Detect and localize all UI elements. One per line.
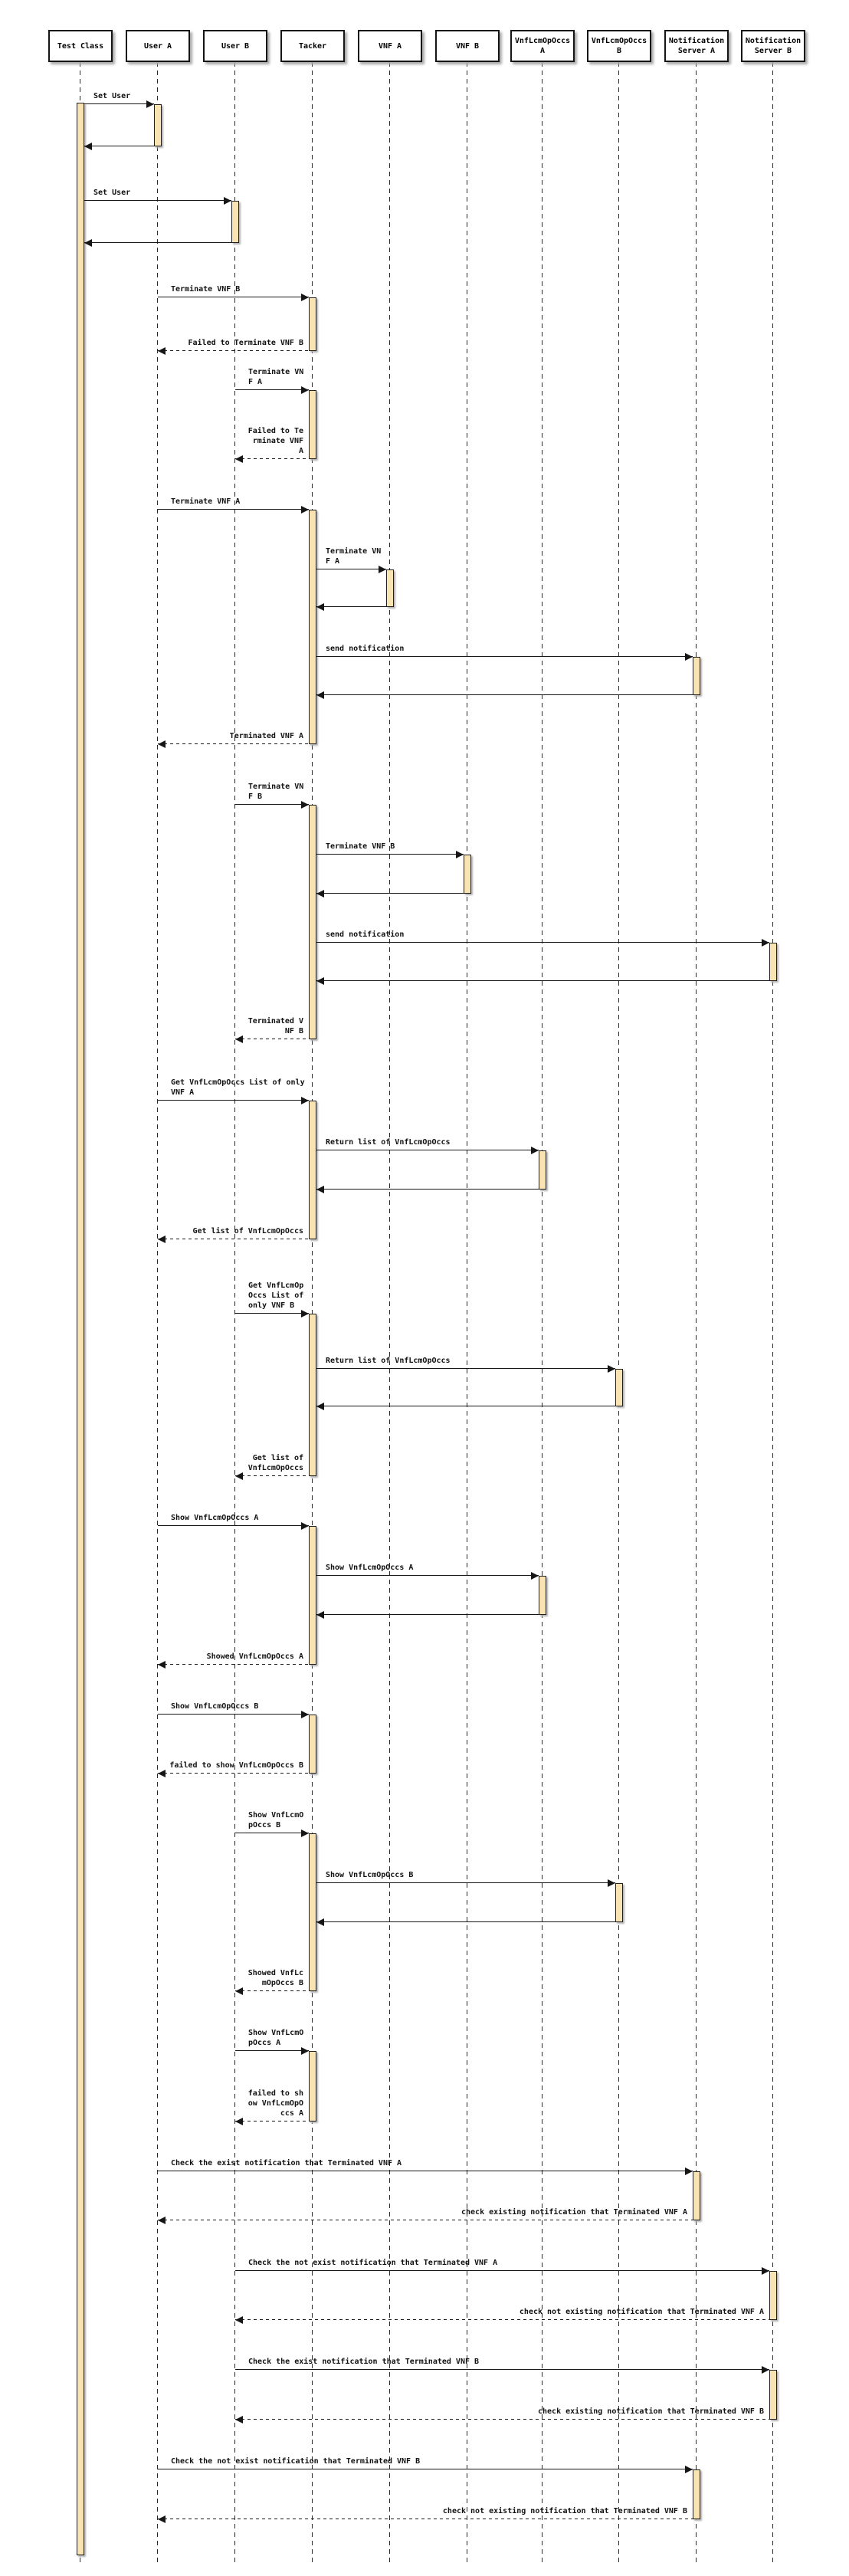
arrowhead-icon [608,1365,615,1373]
activation-bar-vnflcmopoccs-a [539,1576,546,1615]
arrowhead-icon [224,197,231,205]
message-label: Show VnfLcmOpOccs A [326,1563,413,1573]
message-line [235,1833,309,1833]
message-label: Get VnfLcmOpOccs List of only VNF A [171,1078,305,1098]
message-label: Check the not exist notification that Te… [171,2456,420,2466]
return-message-line [158,1664,309,1665]
message-line [158,509,309,510]
return-message-line [84,242,231,243]
message-label: check existing notification that Termina… [538,2407,764,2417]
arrowhead-icon [235,1987,243,1995]
message-label: Show VnfLcmOpOccs B [326,1870,413,1880]
arrowhead-icon [762,939,769,947]
return-message-line [316,1921,615,1922]
arrowhead-icon [146,100,154,108]
activation-bar-tacker [309,297,316,351]
arrowhead-icon [301,1310,309,1318]
participant-label: Notification Server A [669,36,724,56]
activation-bar-notification-server-a [693,2171,700,2220]
return-message-line [158,2519,693,2519]
return-message-line [235,2121,309,2122]
message-label: Set User [93,91,130,101]
lifeline-vnflcmopoccs-a [542,62,543,2564]
participant-label: Test Class [57,41,103,51]
message-line [235,389,309,390]
message-label: Terminate VN F A [248,367,303,387]
activation-bar-user-b [231,201,239,243]
message-label: Check the exist notification that Termin… [248,2357,479,2367]
activation-bar-notification-server-a [693,657,700,695]
message-line [158,297,309,297]
message-line [316,569,386,569]
activation-bar-notification-server-b [769,2271,777,2320]
message-label: Show VnfLcmOpOccs B [171,1701,258,1711]
participant-box-user-a: User A [126,30,190,62]
message-line [316,1150,539,1150]
arrowhead-icon [762,2267,769,2275]
return-message-line [84,146,154,146]
return-message-line [158,1239,309,1239]
arrowhead-icon [316,603,324,611]
message-line [158,1100,309,1101]
arrowhead-icon [158,1770,166,1777]
message-label: Get list of VnfLcmOpOccs [248,1453,303,1473]
return-message-line [316,893,464,894]
return-message-line [235,2419,769,2420]
participant-label: VNF A [379,41,402,51]
arrowhead-icon [531,1572,539,1580]
arrowhead-icon [301,386,309,394]
message-label: Terminate VNF A [171,497,240,507]
message-label: Return list of VnfLcmOpOccs [326,1137,451,1147]
message-line [316,1575,539,1576]
arrowhead-icon [531,1147,539,1154]
message-label: Show VnfLcmO pOccs B [248,1810,303,1830]
arrowhead-icon [379,566,386,573]
arrowhead-icon [608,1879,615,1887]
lifeline-user-a [157,62,158,2564]
activation-bar-notification-server-a [693,2469,700,2519]
participant-box-vnflcmopoccs-b: VnfLcmOpOccs B [587,30,651,62]
participant-box-test-class: Test Class [48,30,113,62]
message-line [158,2171,693,2171]
participant-label: Notification Server B [746,36,801,56]
message-label: check existing notification that Termina… [461,2207,687,2217]
message-label: send notification [326,930,404,940]
lifeline-vnflcmopoccs-b [618,62,619,2564]
arrowhead-icon [158,740,166,748]
participant-box-vnf-a: VNF A [358,30,422,62]
message-label: Show VnfLcmOpOccs A [171,1513,258,1523]
arrowhead-icon [235,2118,243,2125]
lifeline-vnf-a [389,62,390,2564]
message-line [316,854,464,855]
message-line [235,2369,769,2370]
arrowhead-icon [158,2515,166,2523]
participant-box-vnf-b: VNF B [435,30,500,62]
return-message-line [235,1039,309,1039]
participant-box-tacker: Tacker [280,30,345,62]
arrowhead-icon [84,143,92,150]
message-label: Return list of VnfLcmOpOccs [326,1356,451,1366]
arrowhead-icon [235,2316,243,2324]
message-label: Terminated VNF A [230,731,303,741]
message-line [235,804,309,805]
return-message-line [158,350,309,351]
message-label: Terminate VN F A [326,546,381,566]
return-message-line [235,2319,769,2320]
arrowhead-icon [685,2167,693,2175]
participant-label: User A [144,41,172,51]
message-line [84,200,231,201]
arrowhead-icon [685,653,693,661]
arrowhead-icon [456,851,464,858]
return-message-line [316,1614,539,1615]
message-label: Terminate VNF B [171,284,240,294]
message-label: Get list of VnfLcmOpOccs [193,1226,304,1236]
message-line [316,942,769,943]
arrowhead-icon [235,455,243,463]
activation-bar-vnflcmopoccs-b [615,1369,623,1406]
arrowhead-icon [235,1472,243,1480]
return-message-line [235,458,309,459]
arrowhead-icon [301,1097,309,1104]
return-message-line [235,1475,309,1476]
arrowhead-icon [316,1403,324,1410]
message-line [235,2050,309,2051]
activation-bar-tacker [309,390,316,459]
arrowhead-icon [301,506,309,514]
participant-box-notification-server-a: Notification Server A [664,30,729,62]
lifeline-vnf-b [467,62,467,2564]
return-message-line [316,694,693,695]
activation-bar-vnflcmopoccs-a [539,1150,546,1190]
arrowhead-icon [316,1918,324,1926]
activation-bar-notification-server-b [769,2370,777,2420]
arrowhead-icon [762,2366,769,2374]
arrowhead-icon [316,977,324,985]
arrowhead-icon [301,801,309,809]
message-label: Terminated V NF B [248,1016,303,1036]
arrowhead-icon [316,691,324,699]
activation-bar-vnf-b [464,855,471,894]
arrowhead-icon [685,2466,693,2473]
message-label: Showed VnfLcmOpOccs A [207,1652,303,1662]
participant-label: Tacker [299,41,326,51]
message-label: Terminate VNF B [326,842,395,852]
return-message-line [158,2220,693,2220]
activation-bar-tacker [309,1833,316,1991]
return-message-line [235,1990,309,1991]
message-line [316,1368,615,1369]
message-label: Set User [93,188,130,198]
arrowhead-icon [301,1522,309,1530]
message-label: failed to sh ow VnfLcmOpO ccs A [248,2089,303,2118]
message-label: check not existing notification that Ter… [443,2506,687,2516]
arrowhead-icon [301,1711,309,1718]
participant-label: VnfLcmOpOccs A [515,36,570,56]
activation-bar-tacker [309,2051,316,2122]
arrowhead-icon [301,294,309,301]
participant-box-notification-server-b: Notification Server B [741,30,805,62]
activation-bar-vnflcmopoccs-b [615,1883,623,1922]
return-message-line [316,606,386,607]
message-label: Get VnfLcmOp Occs List of only VNF B [248,1281,303,1311]
activation-bar-tacker [309,1526,316,1665]
message-line [316,1882,615,1883]
message-label: Check the not exist notification that Te… [248,2258,497,2268]
arrowhead-icon [84,239,92,247]
arrowhead-icon [158,2217,166,2224]
message-label: check not existing notification that Ter… [520,2307,764,2317]
message-label: failed to show VnfLcmOpOccs B [169,1761,303,1770]
return-message-line [316,1406,615,1406]
activation-bar-tacker [309,1101,316,1239]
activation-bar-tacker [309,1314,316,1476]
message-label: send notification [326,644,404,654]
arrowhead-icon [301,2047,309,2055]
activation-bar-tacker [309,510,316,744]
message-line [158,1525,309,1526]
message-label: Check the exist notification that Termin… [171,2158,402,2168]
arrowhead-icon [316,1611,324,1619]
activation-bar-notification-server-b [769,943,777,981]
return-message-line [316,980,769,981]
arrowhead-icon [158,347,166,355]
message-label: Failed to Te rminate VNF A [248,426,303,456]
message-line [84,103,154,104]
participant-label: VNF B [456,41,479,51]
activation-bar-vnf-a [386,569,394,607]
activation-bar-test-class [77,103,84,2555]
sequence-diagram: Test ClassUser AUser BTackerVNF AVNF BVn… [0,0,849,2576]
participant-box-user-b: User B [203,30,267,62]
participant-box-vnflcmopoccs-a: VnfLcmOpOccs A [510,30,575,62]
lifeline-notification-server-b [772,62,773,2564]
message-line [158,1714,309,1715]
activation-bar-user-a [154,104,162,146]
message-label: Failed to Terminate VNF B [188,338,303,348]
message-line [316,656,693,657]
arrowhead-icon [235,1035,243,1043]
message-line [235,2270,769,2271]
activation-bar-tacker [309,1715,316,1774]
arrowhead-icon [316,890,324,897]
arrowhead-icon [158,1235,166,1243]
message-line [158,2469,693,2469]
arrowhead-icon [158,1661,166,1669]
arrowhead-icon [301,1829,309,1837]
return-message-line [316,1189,539,1190]
message-label: Terminate VN F B [248,782,303,802]
message-label: Show VnfLcmO pOccs A [248,2028,303,2048]
participant-label: User B [221,41,249,51]
return-message-line [158,743,309,744]
arrowhead-icon [235,2416,243,2423]
arrowhead-icon [316,1186,324,1193]
activation-bar-tacker [309,805,316,1039]
participant-label: VnfLcmOpOccs B [592,36,647,56]
message-line [235,1313,309,1314]
message-label: Showed VnfLc mOpOccs B [248,1968,303,1988]
return-message-line [158,1773,309,1774]
